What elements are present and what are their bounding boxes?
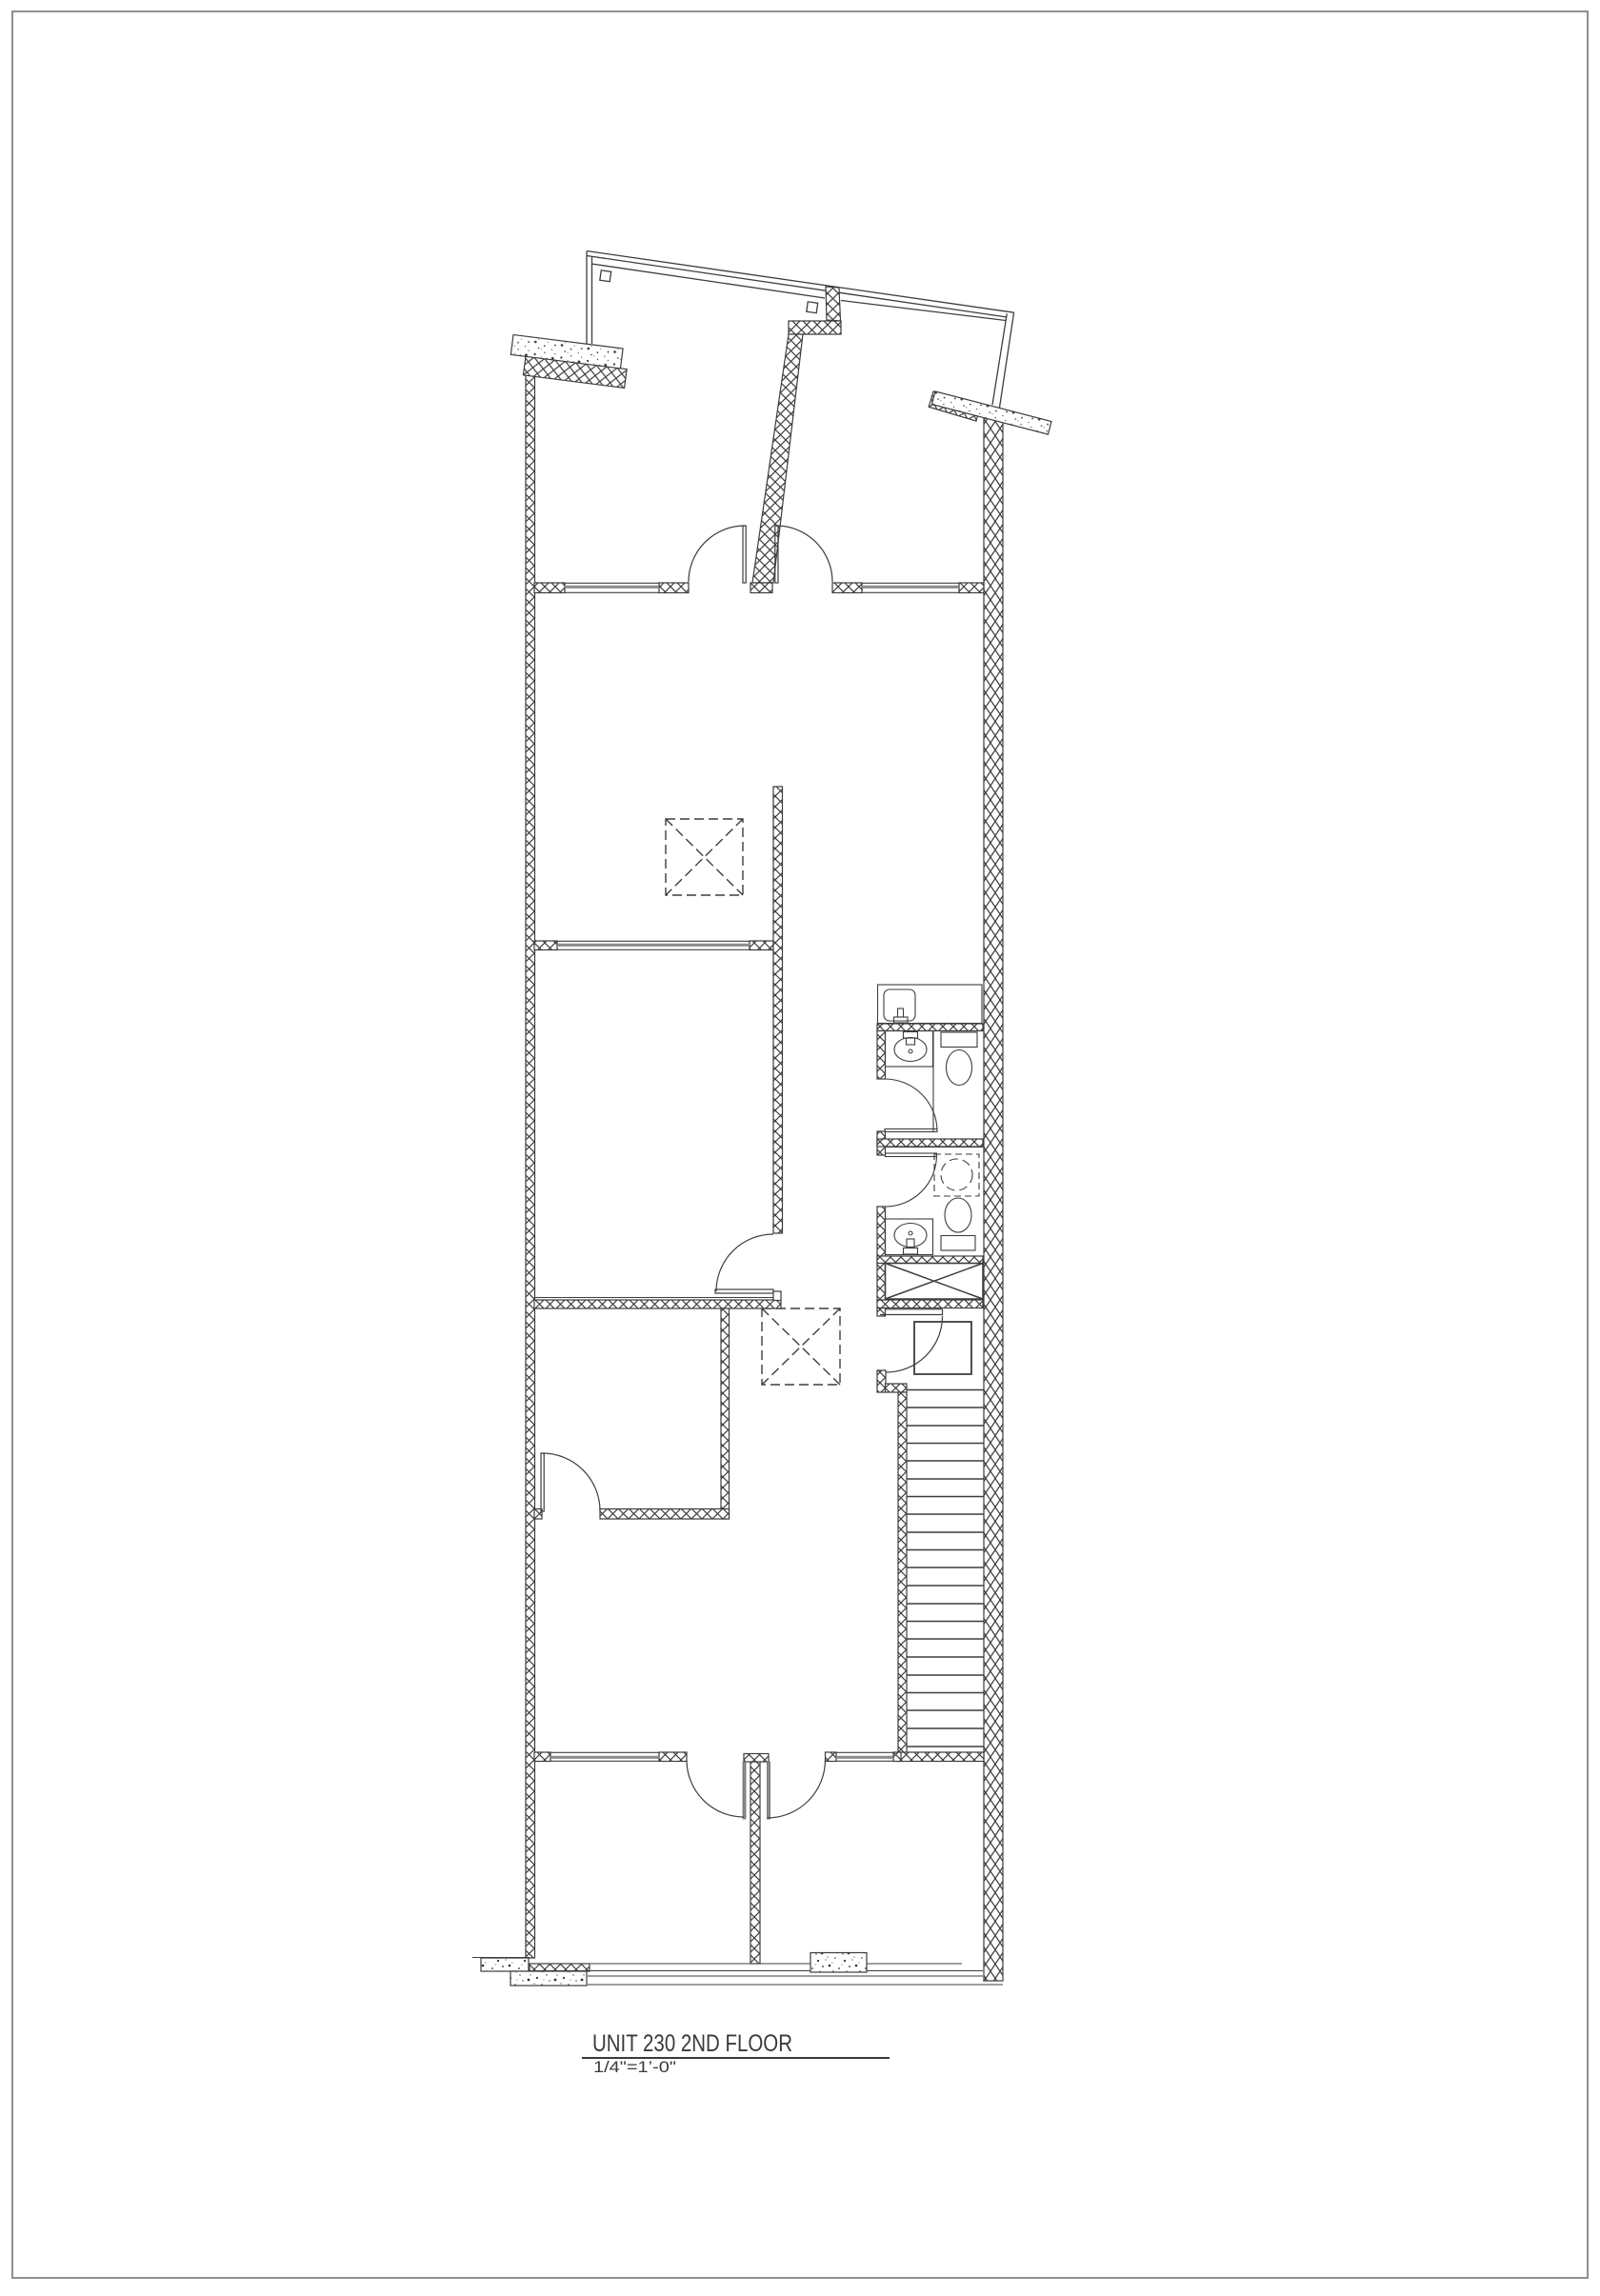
svg-text:UNIT 230 2ND FLOOR: UNIT 230 2ND FLOOR bbox=[592, 2030, 792, 2057]
svg-text:1/4"=1’-0": 1/4"=1’-0" bbox=[593, 2059, 676, 2076]
